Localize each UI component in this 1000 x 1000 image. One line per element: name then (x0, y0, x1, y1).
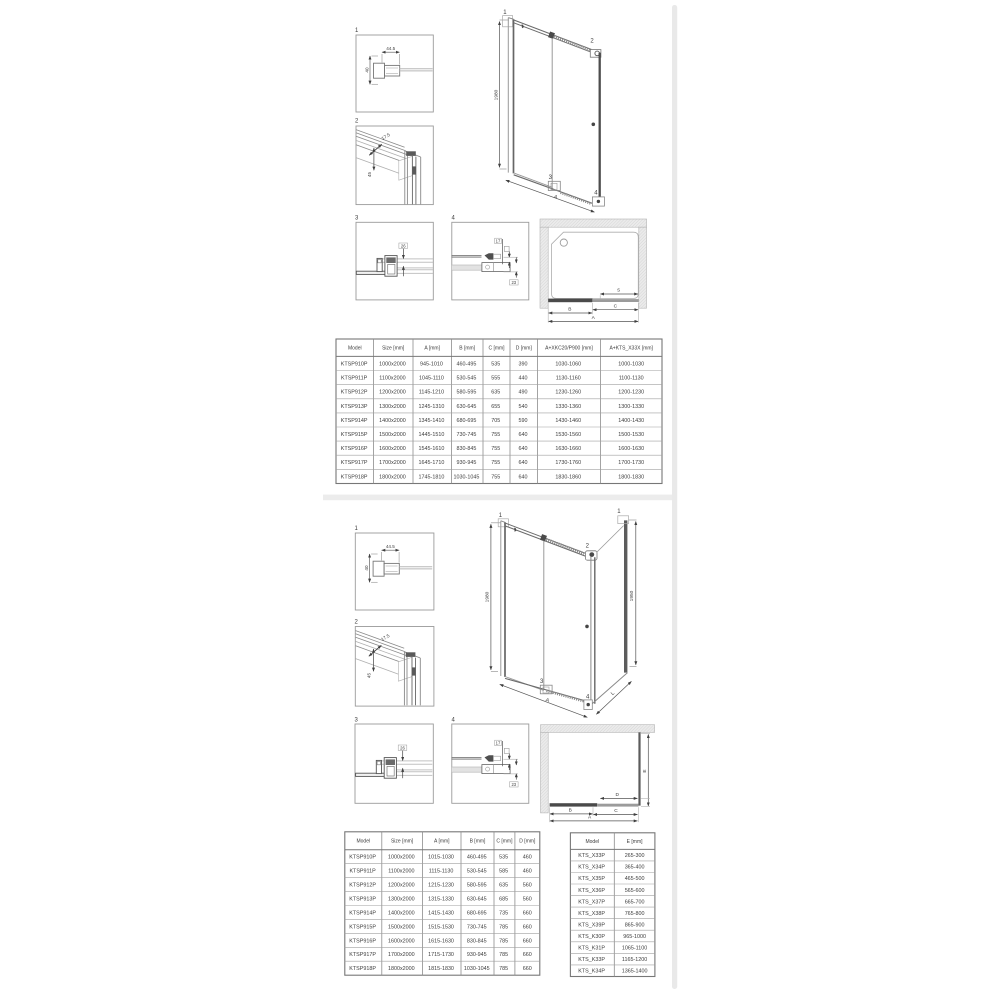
svg-text:KTSP912P 1200x2000 1215-1230 5: KTSP912P 1200x2000 1215-1230 580-595 635… (349, 883, 532, 889)
svg-text:D [mm]: D [mm] (516, 346, 533, 352)
svg-text:E [mm]: E [mm] (627, 839, 643, 845)
svg-text:B: B (568, 307, 571, 313)
svg-text:KTSP913P 1300x2000 1315-1330 6: KTSP913P 1300x2000 1315-1330 630-645 685… (349, 897, 532, 903)
svg-text:A [mm]: A [mm] (424, 346, 440, 352)
svg-text:KTSP918P 1800x2000 1815-1830 1: KTSP918P 1800x2000 1815-1830 1030-1045 7… (349, 966, 532, 972)
svg-text:C [mm]: C [mm] (496, 839, 513, 845)
svg-text:KTSP915P 1500x2000 1515-1530 7: KTSP915P 1500x2000 1515-1530 730-745 785… (349, 924, 532, 930)
svg-text:KTSP911P 1100x2000 1115-1130 5: KTSP911P 1100x2000 1115-1130 530-545 585… (349, 869, 531, 875)
svg-text:Size [mm]: Size [mm] (382, 346, 405, 352)
svg-text:A+KTS_X33X [mm]: A+KTS_X33X [mm] (609, 346, 653, 352)
svg-text:1950: 1950 (629, 590, 635, 601)
svg-text:C: C (614, 808, 618, 814)
svg-text:C: C (614, 303, 618, 309)
svg-text:D [mm]: D [mm] (519, 839, 536, 845)
svg-text:KTSP914P 1400x2000 1415-1430 6: KTSP914P 1400x2000 1415-1430 680-695 735… (349, 910, 532, 916)
svg-text:KTSP917P 1700x2000 1715-1730 9: KTSP917P 1700x2000 1715-1730 930-945 785… (349, 952, 532, 958)
svg-text:1980: 1980 (493, 89, 499, 100)
svg-text:S: S (617, 288, 620, 293)
svg-text:Model: Model (585, 839, 599, 845)
svg-text:B [mm]: B [mm] (459, 346, 475, 352)
svg-text:1980: 1980 (485, 591, 491, 602)
svg-text:Model: Model (348, 346, 362, 352)
svg-text:A+XKC20/P900 [mm]: A+XKC20/P900 [mm] (545, 346, 593, 352)
svg-text:B: B (569, 808, 572, 814)
svg-text:KTSP916P 1600x2000 1615-1630 8: KTSP916P 1600x2000 1615-1630 830-845 785… (349, 938, 532, 944)
svg-text:B [mm]: B [mm] (470, 839, 486, 845)
svg-text:KTSP910P 1000x2000 1015-1030 4: KTSP910P 1000x2000 1015-1030 460-495 535… (349, 855, 532, 861)
svg-text:Model: Model (356, 839, 370, 845)
svg-text:A [mm]: A [mm] (434, 839, 450, 845)
svg-text:Size [mm]: Size [mm] (391, 839, 414, 845)
svg-text:C [mm]: C [mm] (488, 346, 505, 352)
svg-text:D: D (615, 792, 619, 798)
svg-text:E: E (642, 769, 648, 772)
